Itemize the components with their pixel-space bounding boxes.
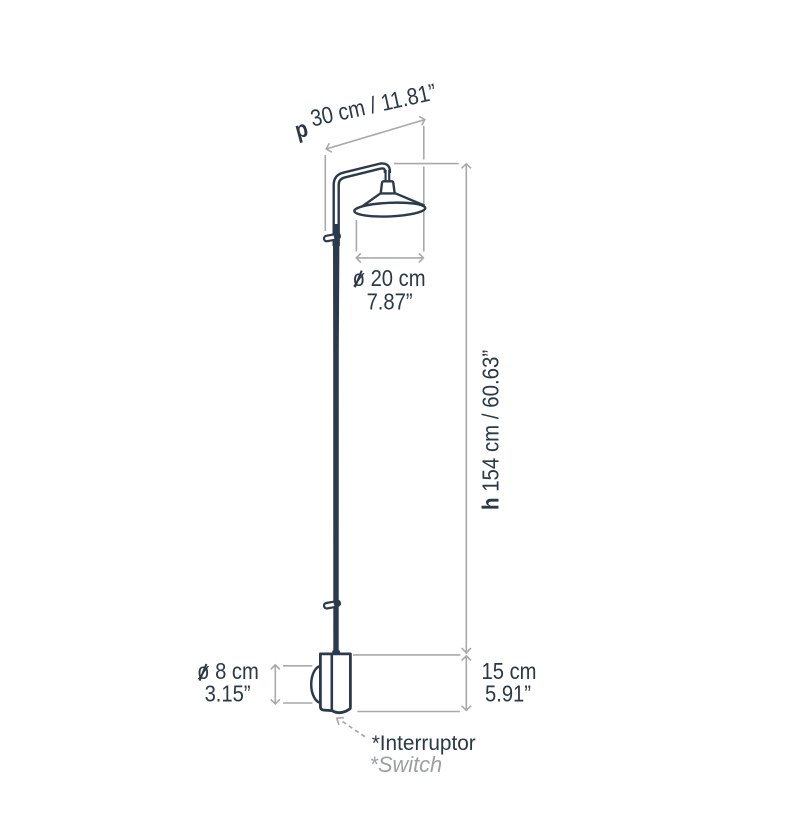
svg-text:*Switch: *Switch [370,752,443,777]
svg-text:3.15”: 3.15” [205,680,251,707]
svg-text:5.91”: 5.91” [485,680,531,707]
svg-text:h 154 cm / 60.63”: h 154 cm / 60.63” [477,350,504,510]
svg-text:7.87”: 7.87” [367,288,413,315]
